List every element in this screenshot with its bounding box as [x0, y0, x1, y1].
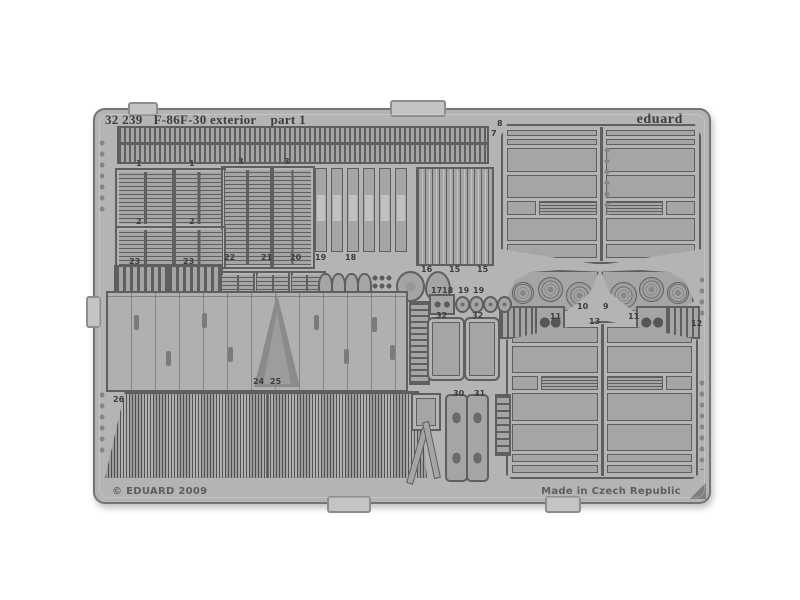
part-number-label: 18: [442, 287, 453, 295]
photo-etch-fret: 32 239F-86F-30 exteriorpart 1 eduard © E…: [93, 108, 711, 504]
part-number-label: 2: [189, 218, 195, 226]
part-number-label: 21: [261, 254, 272, 262]
part-number-label: 16: [421, 266, 432, 274]
part-number-label: 23: [183, 258, 194, 266]
part-number-label: 7: [491, 130, 497, 138]
part-number-label: 32: [436, 312, 447, 320]
part-number-label: 15: [449, 266, 460, 274]
part-number-label: 9: [603, 303, 609, 311]
part-number-label: 15: [477, 266, 488, 274]
part-number-label: 8: [497, 120, 503, 128]
part-labels-layer: 1133227823232221201918161515171819193232…: [95, 110, 709, 502]
part-number-label: 20: [290, 254, 301, 262]
part-number-label: 1: [189, 160, 195, 168]
part-number-label: 11: [550, 313, 561, 321]
part-number-label: 31: [474, 390, 485, 398]
part-number-label: 3: [284, 158, 290, 166]
part-number-label: 19: [315, 254, 326, 262]
part-number-label: 11: [628, 313, 639, 321]
part-number-label: 22: [224, 254, 235, 262]
part-number-label: 10: [577, 303, 588, 311]
part-number-label: 17: [431, 287, 442, 295]
part-number-label: 12: [691, 320, 702, 328]
part-number-label: 19: [458, 287, 469, 295]
part-number-label: 18: [345, 254, 356, 262]
part-number-label: 13: [589, 318, 600, 326]
part-number-label: 1: [136, 160, 142, 168]
part-number-label: 19: [473, 287, 484, 295]
part-number-label: 3: [238, 158, 244, 166]
part-number-label: 32: [472, 312, 483, 320]
photo-canvas: 32 239F-86F-30 exteriorpart 1 eduard © E…: [0, 0, 800, 600]
part-number-label: 2: [136, 218, 142, 226]
part-number-label: 24: [253, 378, 264, 386]
part-number-label: 25: [270, 378, 281, 386]
part-number-label: 26: [113, 396, 124, 404]
part-number-label: 23: [129, 258, 140, 266]
part-number-label: 30: [453, 390, 464, 398]
